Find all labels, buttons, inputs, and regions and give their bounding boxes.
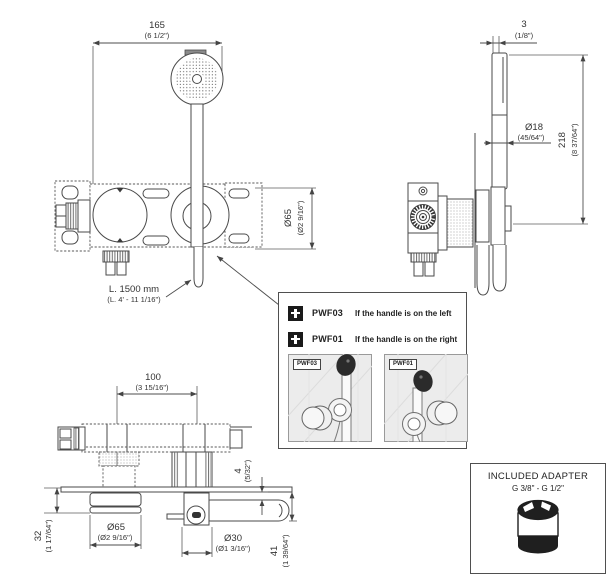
dim-165-in: (6 1/2") (145, 31, 170, 40)
dim-100-mm: 100 (145, 372, 161, 383)
front-view: 165 (6 1/2") (55, 20, 316, 305)
knob-disc-face (90, 507, 141, 513)
body-end-cap (230, 430, 242, 448)
dim-3-in: (1/8") (515, 31, 534, 40)
option-code: PWF01 (312, 334, 346, 344)
adapter-art (471, 498, 605, 560)
dim-65-in: (Ø2 9/16") (296, 200, 305, 235)
option-description: If the handle is on the right (355, 335, 457, 344)
dim-30-in: (Ø1 3/16") (216, 544, 251, 553)
dim-218-mm: 218 (557, 132, 568, 148)
temperature-knob (93, 188, 147, 242)
valve-body-bottom (82, 424, 230, 452)
wall-bracket-side (476, 187, 511, 245)
dim-218-in: (8 37/64") (570, 123, 579, 157)
inlet-bottom (58, 427, 85, 450)
handle-shaft (191, 104, 203, 247)
dim-41-mm: 41 (269, 546, 280, 557)
technical-drawing-page: 165 (6 1/2") (0, 0, 614, 587)
thumbnail-label: PWF01 (389, 359, 417, 370)
knob-cylinder-hidden (103, 466, 135, 487)
valve-body-side (408, 183, 473, 276)
handle-stem-bottom (172, 452, 212, 487)
options-leader (217, 256, 279, 305)
adapter-lower (518, 534, 558, 554)
dim-18-in: (45/64") (518, 133, 545, 142)
included-adapter-panel: INCLUDED ADAPTER G 3/8" - G 1/2" (470, 463, 606, 574)
adapter-title: INCLUDED ADAPTER (471, 471, 605, 482)
dim-65-mm: Ø65 (283, 209, 294, 227)
adapter-subtitle: G 3/8" - G 1/2" (471, 484, 605, 493)
dim-30-mm: Ø30 (224, 533, 242, 544)
option-code: PWF03 (312, 308, 346, 318)
thumbnail-pwf01: PWF01 (384, 354, 468, 442)
dim-100-in: (3 15/16") (135, 383, 169, 392)
wall-plate-edge (61, 487, 292, 492)
plus-icon (288, 332, 303, 347)
hose-loop (477, 245, 489, 295)
dim-65b-in: (Ø2 9/16") (98, 533, 133, 542)
bottom-view: 100 (3 15/16") (33, 372, 297, 568)
dim-3-mm: 3 (521, 19, 526, 30)
dim-18-mm: Ø18 (525, 122, 543, 133)
thumbnail-pwf03: PWF03 (288, 354, 372, 442)
lever-handle (200, 500, 289, 521)
knob-knurl-band (99, 452, 139, 466)
plus-icon (288, 306, 303, 321)
dim-41-in: (1 39/64") (281, 534, 290, 568)
handset-side (492, 53, 507, 189)
bottom-outlet (103, 251, 129, 275)
dim-32-mm: 32 (33, 531, 44, 542)
right-bracket (225, 183, 262, 247)
dim-4-in: (5/32") (243, 459, 252, 482)
hose-length-in: (L. 4' - 11 1/16") (107, 295, 161, 304)
dim-165-mm: 165 (149, 20, 165, 31)
option-row-pwf03: PWF03 If the handle is on the left (288, 300, 466, 326)
side-view: 3 (1/8") Ø18 (45/64") (408, 19, 588, 295)
adapter-illustration (515, 498, 561, 560)
hose-loop (493, 245, 506, 291)
knob-disc (90, 493, 141, 506)
hose-length-mm: L. 1500 mm (109, 284, 159, 295)
thumbnail-label: PWF03 (293, 359, 321, 370)
dim-65b-mm: Ø65 (107, 522, 125, 533)
hose-leader (166, 280, 191, 297)
dim-32-in: (1 17/64") (44, 519, 53, 553)
spray-center (193, 75, 202, 84)
option-description: If the handle is on the left (355, 309, 451, 318)
hose-end (194, 247, 203, 287)
handle-options-panel: PWF03 If the handle is on the left PWF01… (278, 292, 467, 449)
option-row-pwf01: PWF01 If the handle is on the right (288, 326, 466, 352)
